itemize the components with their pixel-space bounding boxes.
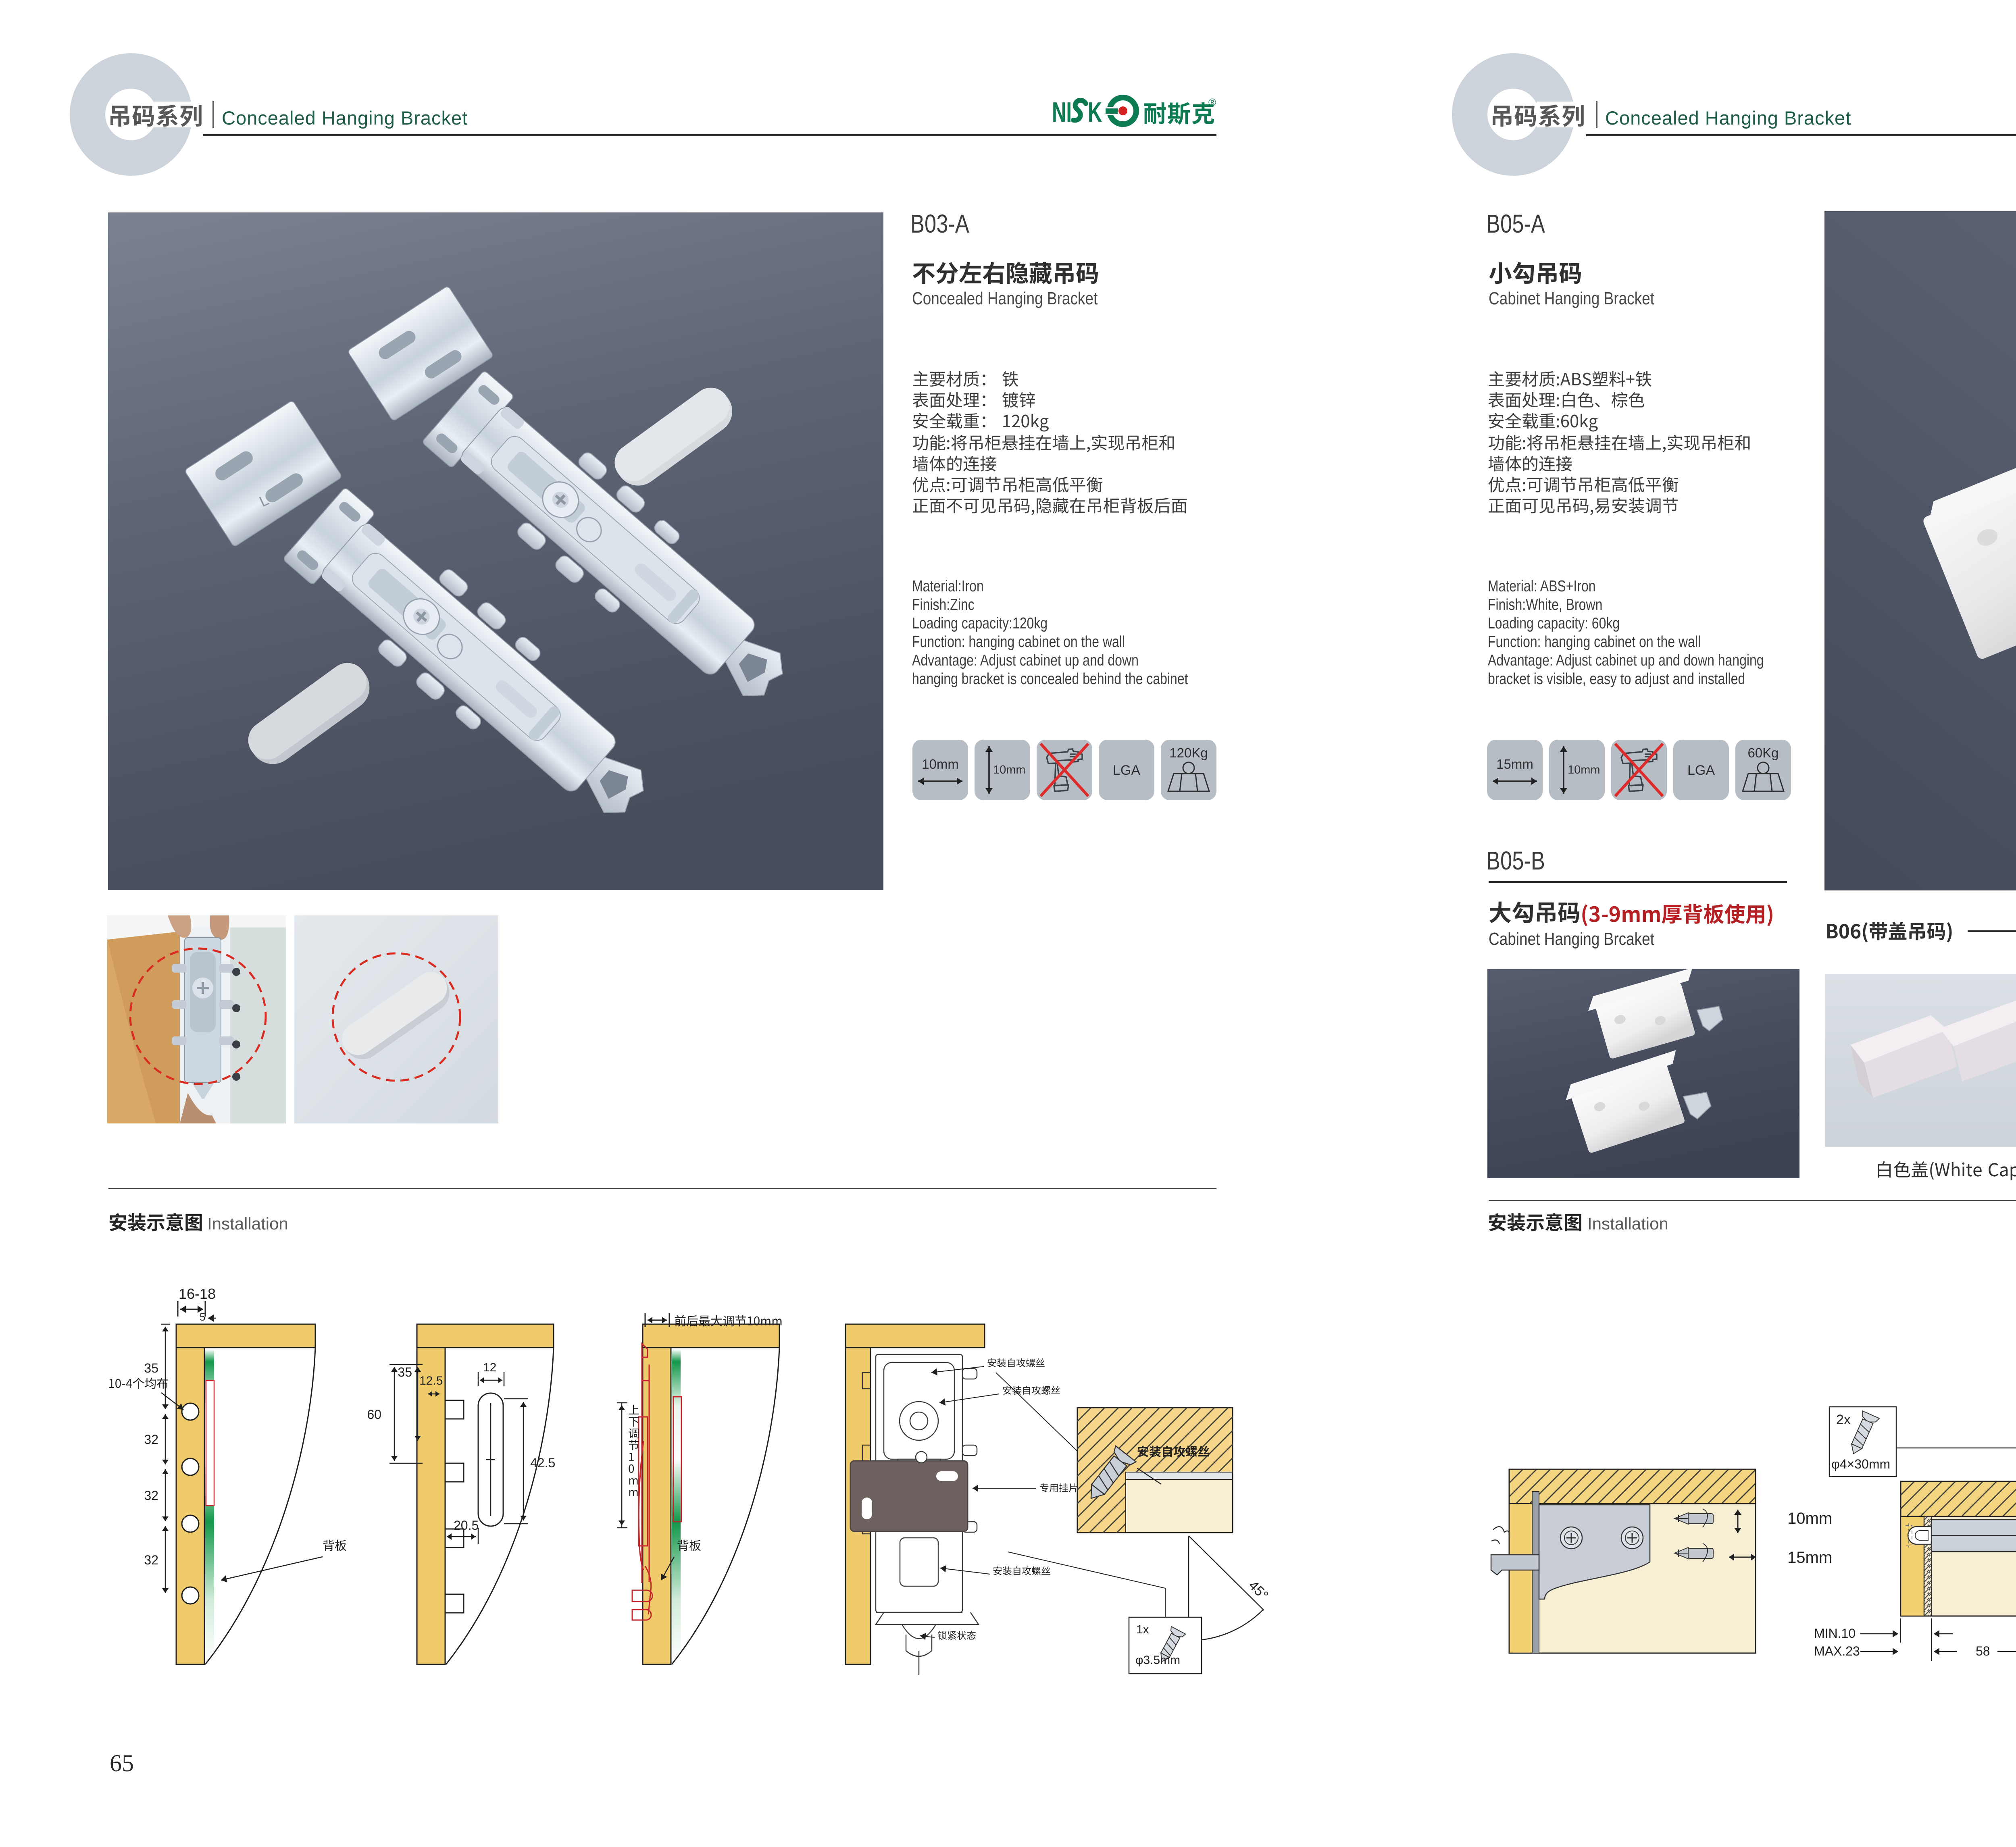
svg-text:60: 60 — [367, 1407, 381, 1422]
svg-text:12.5: 12.5 — [419, 1374, 443, 1387]
svg-text:32: 32 — [144, 1488, 158, 1503]
svg-text:32: 32 — [144, 1553, 158, 1567]
svg-text:1x: 1x — [1136, 1623, 1149, 1636]
svg-text:φ4×30mm: φ4×30mm — [1831, 1457, 1890, 1471]
svg-text:MIN.10: MIN.10 — [1814, 1626, 1856, 1641]
svg-text:35: 35 — [144, 1361, 158, 1375]
svg-text:10mm: 10mm — [1787, 1510, 1832, 1527]
svg-text:φ3.5mm: φ3.5mm — [1135, 1654, 1180, 1667]
svg-text:45°: 45° — [1245, 1578, 1271, 1603]
svg-text:16-18: 16-18 — [179, 1285, 216, 1302]
svg-text:42.5: 42.5 — [530, 1456, 555, 1470]
svg-text:58: 58 — [1976, 1644, 1990, 1658]
svg-text:35: 35 — [398, 1365, 412, 1379]
svg-text:12: 12 — [483, 1361, 496, 1374]
svg-text:5: 5 — [200, 1311, 205, 1323]
svg-text:20.5: 20.5 — [454, 1518, 479, 1533]
svg-text:15mm: 15mm — [1787, 1549, 1832, 1566]
svg-text:MAX.23: MAX.23 — [1814, 1644, 1860, 1658]
svg-text:2x: 2x — [1836, 1412, 1851, 1427]
svg-text:32: 32 — [144, 1432, 158, 1447]
